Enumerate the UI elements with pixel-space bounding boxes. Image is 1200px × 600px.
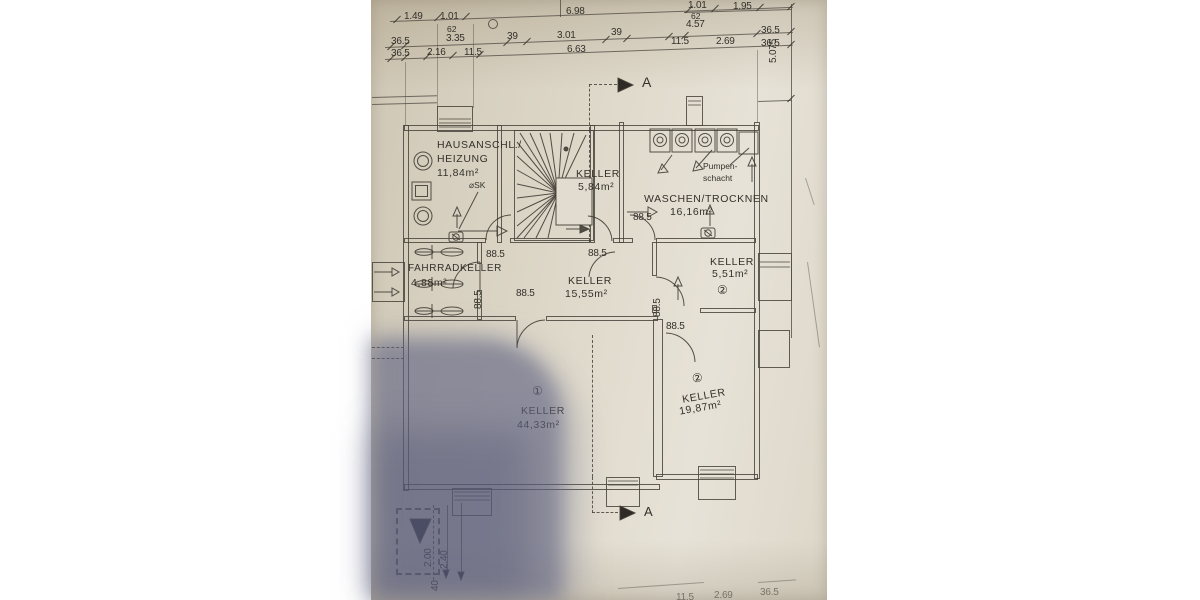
label-pump-1: Pumpen- [703, 161, 738, 171]
room-label-fahrrad: FAHRRADKELLER [408, 263, 502, 274]
room-label-keller-stair: KELLER [576, 168, 620, 180]
dimension-label: 2.69 [716, 36, 735, 47]
dimension-label: 2.69 [714, 590, 733, 600]
room-label-hausanschluss: HAUSANSCHL./ [437, 139, 522, 151]
dimension-label: 6.98 [566, 6, 585, 17]
dimension-label: 6.63 [567, 44, 586, 55]
room-area-waschen: 16,16m² [670, 206, 713, 218]
dimension-label: 39 [611, 27, 622, 38]
room-area-keller-stair: 5,84m² [578, 181, 614, 193]
dimension-label: 11.5 [671, 36, 689, 47]
dimension-label: 39 [507, 31, 518, 42]
section-arrow-bottom [620, 506, 635, 520]
room-area-keller-551: 5,51m² [712, 268, 748, 280]
dim-arrow-2 [458, 572, 464, 580]
dimension-label: 88.5 [486, 249, 505, 260]
room-area-fahrrad: 4,88m² [411, 277, 447, 289]
dimension-label: 2.00 [423, 548, 434, 567]
washing-machine-icons [650, 129, 737, 152]
section-letter-bottom: A [644, 504, 653, 519]
dimension-label: 1.01 [440, 11, 459, 22]
dimension-label: 4.57 [686, 19, 705, 30]
symbol-layer [0, 0, 1200, 600]
dimension-label: 88.5 [652, 298, 663, 317]
dimension-label: 88.5 [473, 290, 484, 309]
dimension-label: 40 [430, 580, 441, 591]
section-arrow-top [618, 78, 633, 92]
label-sk: ⌀SK [469, 180, 485, 191]
floorplan-photo: HAUSANSCHL./ HEIZUNG 11,84m² ⌀SK KELLER … [0, 0, 1200, 600]
dimension-label: 36.5 [760, 587, 779, 598]
dimension-label: 11.5 [464, 47, 482, 58]
room-area-keller-mitte: 15,55m² [565, 288, 608, 300]
room-label-keller-551: KELLER [710, 256, 754, 268]
boiler-icons [412, 152, 432, 225]
room-number-keller-551: ② [717, 283, 728, 297]
room-label-waschen: WASCHEN/TROCKNEN [644, 193, 769, 205]
dim-arrow-1 [443, 570, 449, 578]
dimension-label: 1.49 [404, 11, 423, 22]
room-label-hausanschluss-2: HEIZUNG [437, 153, 488, 165]
dimension-label: 88.5 [666, 321, 685, 332]
dimension-label: 36.5 [391, 36, 410, 47]
room-label-keller-4433: KELLER [521, 405, 565, 417]
dimension-label: 11.5 [676, 592, 694, 600]
label-pump-2: schacht [703, 173, 732, 183]
dimension-label: 36.5 [391, 48, 410, 59]
room-label-keller-mitte: KELLER [568, 275, 612, 287]
pump-shaft-box [739, 132, 758, 154]
dimension-label: 88.5 [516, 288, 535, 299]
dimension-label: 1.01 [688, 0, 707, 11]
dimension-label: 3.35 [446, 33, 465, 44]
room-number-keller-4433: ① [532, 384, 543, 398]
dimension-label: 2.40 [439, 550, 450, 569]
entry-triangle [410, 519, 431, 543]
section-letter-top: A [642, 74, 652, 90]
dimension-label: 36.5 [761, 25, 780, 36]
room-number-keller-1987: ② [691, 370, 704, 386]
dimension-label: 1.95 [733, 1, 752, 12]
dimension-label: 36.5 [761, 38, 780, 49]
room-area-keller-4433: 44,33m² [517, 419, 560, 431]
dimension-label: 2.16 [427, 47, 446, 58]
dimension-label: 3.01 [557, 30, 576, 41]
dimension-label: 88.5 [588, 248, 607, 259]
dimension-label: 88.5 [633, 212, 652, 223]
room-area-hausanschluss: 11,84m² [437, 167, 479, 179]
